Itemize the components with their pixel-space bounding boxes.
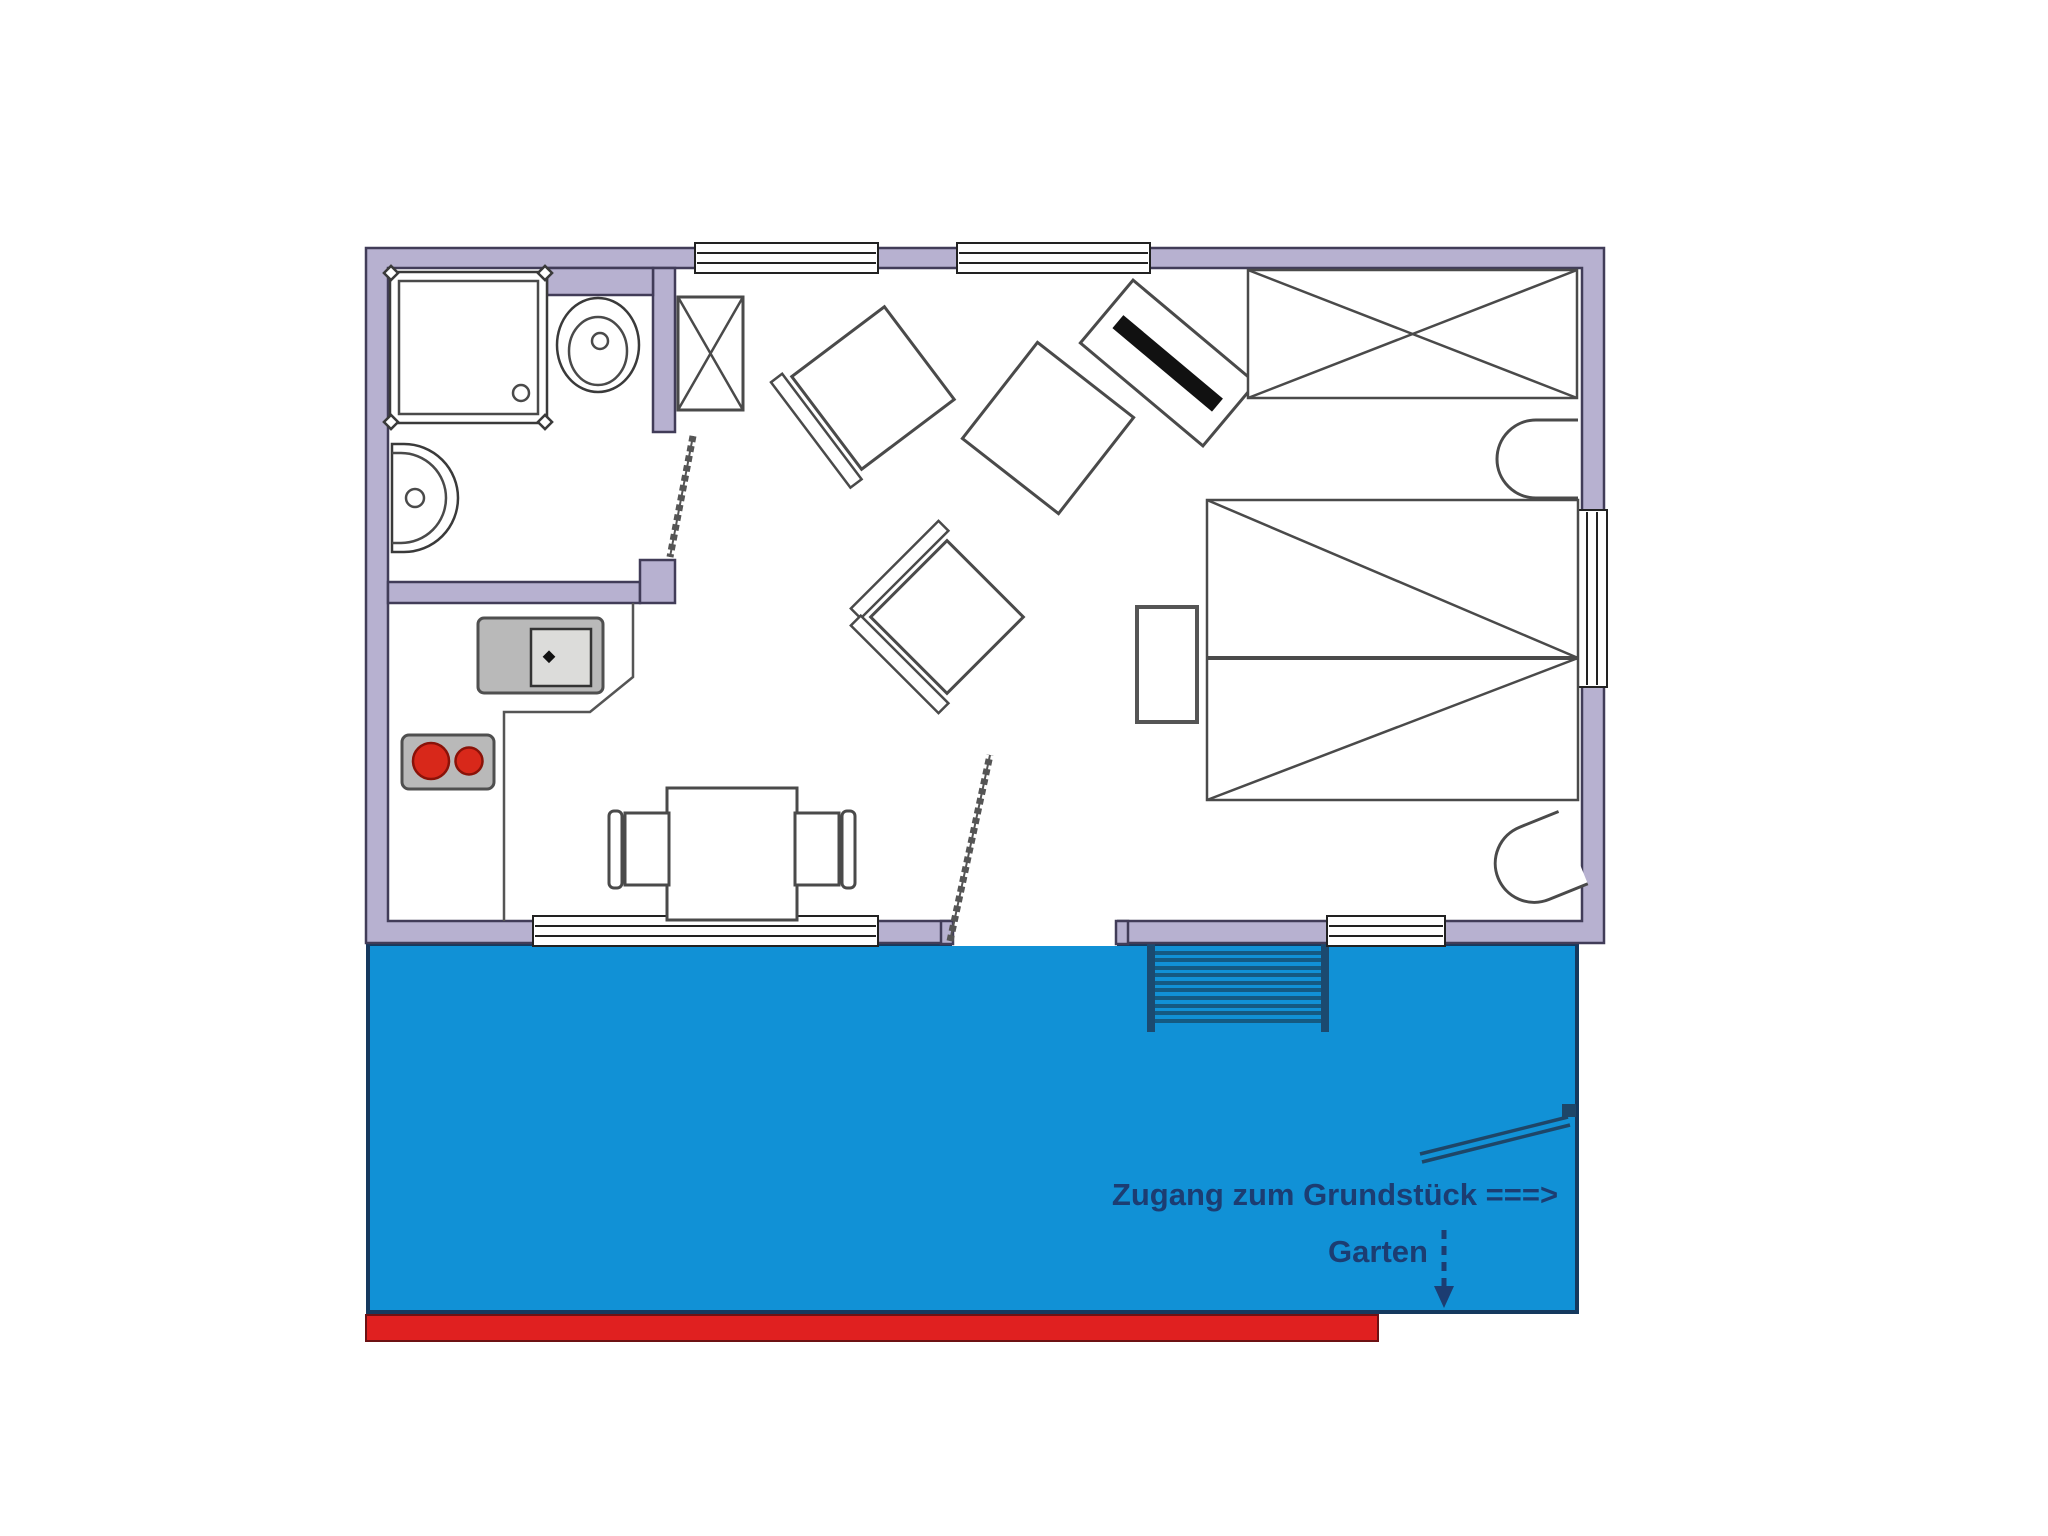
dining-chair-left-seat [625, 813, 669, 885]
dining-set [609, 788, 855, 920]
stove-burner-large [413, 743, 449, 779]
window-right-wall [1577, 510, 1607, 687]
dining-chair-right-back [842, 811, 855, 888]
window-frame [1577, 510, 1607, 687]
access-label: Zugang zum Grundstück ===> [1112, 1177, 1558, 1212]
shower-symbol [384, 266, 552, 429]
tub-chair-upper [1497, 420, 1578, 498]
lounge-chair-center [842, 521, 1034, 713]
dining-table [667, 788, 797, 920]
kitchen-sink-symbol [478, 618, 603, 693]
stair-rail-left [1147, 944, 1155, 1032]
stove-burner-small [456, 748, 483, 775]
wardrobe [1248, 270, 1577, 398]
window-top-1 [695, 243, 878, 273]
floor-plan-drawing: Zugang zum Grundstück ===> Garten [0, 0, 2048, 1536]
washbasin-symbol [392, 444, 458, 552]
armchair-seat [792, 307, 954, 469]
red-walkway [366, 1315, 1378, 1341]
window-frame [957, 243, 1150, 273]
entry-door [950, 755, 990, 941]
double-bed [1207, 500, 1578, 800]
bathroom-south-wall [388, 582, 640, 603]
window-frame [1327, 916, 1445, 946]
entry-jamb-right [1116, 921, 1128, 944]
dining-chair-left-back [609, 811, 622, 888]
bathroom-door [670, 436, 693, 557]
nightstand [1137, 607, 1197, 722]
sink-basin [531, 629, 591, 686]
bathroom-door-jamb [640, 560, 675, 603]
terrace-area: Zugang zum Grundstück ===> Garten [368, 944, 1577, 1312]
stove-symbol [402, 735, 494, 789]
stair-rail-right [1321, 944, 1329, 1032]
window-frame [695, 243, 878, 273]
entry-opening [952, 915, 1117, 946]
hall-closet [678, 297, 743, 410]
garden-label: Garten [1328, 1234, 1428, 1269]
window-top-2 [957, 243, 1150, 273]
bathroom-east-wall [653, 268, 675, 432]
armchair-top [771, 300, 959, 487]
dining-chair-right-seat [795, 813, 839, 885]
floor-plan-canvas: Zugang zum Grundstück ===> Garten [0, 0, 2048, 1536]
lounge-chair-seat [871, 541, 1024, 694]
path-end-marker [1562, 1104, 1576, 1117]
toilet-symbol [557, 298, 639, 392]
door-leaf [950, 755, 990, 941]
window-bottom-right [1327, 916, 1445, 946]
door-leaf [670, 436, 693, 557]
bed-frame [1207, 500, 1578, 800]
tub-chair-lower [1483, 811, 1587, 914]
toilet-niche-wall [547, 268, 653, 295]
